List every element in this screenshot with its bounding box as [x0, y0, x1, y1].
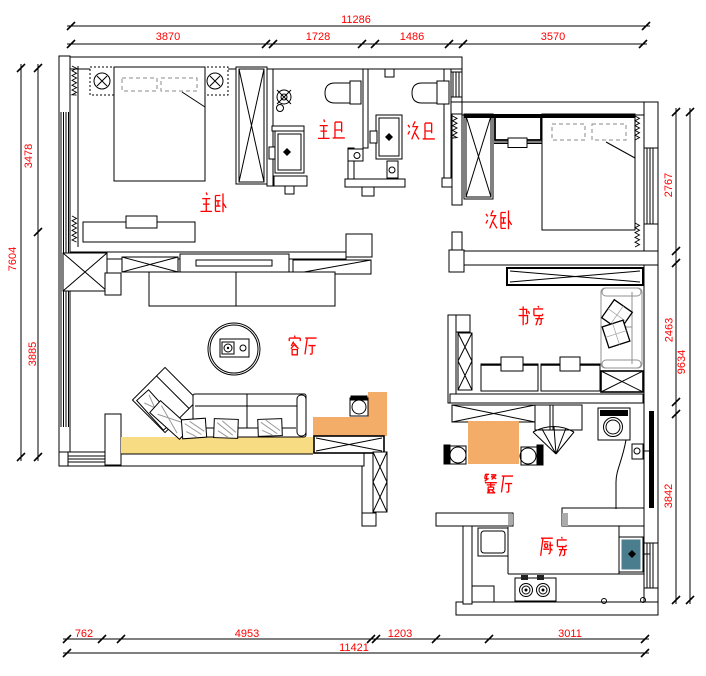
- svg-text:1486: 1486: [400, 31, 424, 43]
- svg-text:3842: 3842: [663, 484, 675, 508]
- svg-text:2767: 2767: [663, 173, 675, 197]
- svg-text:762: 762: [75, 628, 93, 640]
- svg-text:9634: 9634: [676, 350, 688, 374]
- svg-text:3011: 3011: [558, 628, 582, 640]
- svg-text:4953: 4953: [235, 628, 259, 640]
- svg-text:1728: 1728: [306, 31, 330, 43]
- svg-text:3478: 3478: [23, 144, 35, 168]
- svg-text:3570: 3570: [541, 31, 565, 43]
- svg-text:1203: 1203: [388, 628, 412, 640]
- svg-text:11286: 11286: [341, 14, 371, 26]
- svg-text:3870: 3870: [156, 31, 180, 43]
- svg-text:3885: 3885: [27, 342, 39, 366]
- svg-text:7604: 7604: [7, 247, 19, 271]
- svg-text:2463: 2463: [664, 318, 676, 342]
- svg-text:11421: 11421: [339, 642, 369, 654]
